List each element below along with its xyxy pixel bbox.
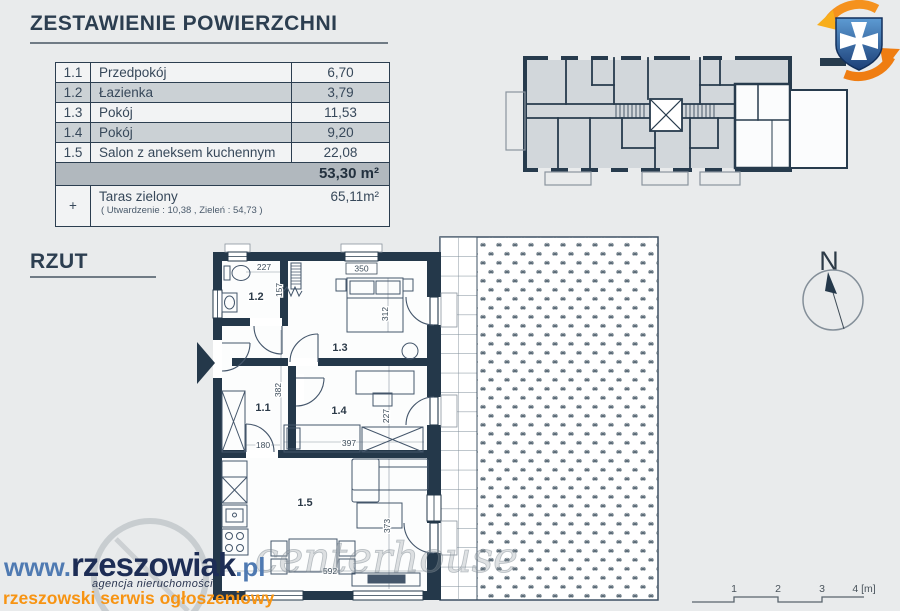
row-number: 1.4	[56, 123, 91, 142]
row-area-value: 22,08	[292, 143, 389, 162]
terrace-area	[440, 237, 658, 600]
terrace-details: Taras zielony 65,11m² ( Utwardzenie : 10…	[91, 186, 389, 226]
title-underline	[30, 42, 388, 44]
page-title: ZESTAWIENIE POWIERZCHNI	[30, 12, 337, 36]
row-area-value: 6,70	[292, 63, 389, 82]
room-label-bedroom1: 1.3	[332, 342, 347, 354]
table-row: 1.4 Pokój 9,20	[56, 123, 389, 143]
compass-circle	[803, 270, 863, 330]
dim-hall-height: 382	[273, 383, 283, 397]
dim-living-height: 373	[382, 519, 392, 533]
keyplan-left-stub	[506, 92, 525, 150]
keyplan-balconies	[545, 172, 740, 185]
terrace-area-value: 65,11m²	[330, 188, 379, 205]
dim-bath-width: 227	[257, 262, 271, 272]
table-row: 1.5 Salon z aneksem kuchennym 22,08	[56, 143, 389, 163]
room-label-bedroom2: 1.4	[331, 405, 347, 417]
entrance-arrow-icon	[197, 342, 215, 384]
room-label-bath: 1.2	[248, 291, 263, 303]
plan-section-title: RZUT	[30, 250, 88, 274]
dim-bed2-height: 227	[381, 409, 391, 423]
scale-tick-1: 1	[731, 583, 737, 595]
table-row: 1.3 Pokój 11,53	[56, 103, 389, 123]
north-compass: N	[803, 246, 863, 330]
terrace-row: + Taras zielony 65,11m² ( Utwardzenie : …	[56, 186, 389, 226]
row-room-name: Przedpokój	[91, 63, 292, 82]
building-key-plan	[506, 55, 847, 185]
dim-bath-height: 157	[274, 283, 284, 297]
row-room-name: Pokój	[91, 123, 292, 142]
dim-bed2-width: 397	[342, 438, 356, 448]
keyplan-highlighted-unit	[735, 84, 790, 168]
terrace-note: ( Utwardzenie : 10,38 , Zieleń : 54,73 )	[99, 205, 379, 217]
dim-living-width: 592	[323, 566, 337, 576]
row-area-value: 9,20	[292, 123, 389, 142]
area-summary-table: 1.1 Przedpokój 6,70 1.2 Łazienka 3,79 1.…	[55, 62, 390, 227]
row-number: 1.5	[56, 143, 91, 162]
plan-title-underline	[30, 276, 156, 278]
total-area-row: 53,30 m²	[56, 163, 389, 186]
row-room-name: Łazienka	[91, 83, 292, 102]
row-room-name: Pokój	[91, 103, 292, 122]
table-row: 1.2 Łazienka 3,79	[56, 83, 389, 103]
scale-bar-line	[692, 597, 864, 602]
row-number: 1.2	[56, 83, 91, 102]
scale-tick-2: 2	[775, 583, 781, 595]
room-label-living: 1.5	[297, 497, 312, 509]
dim-bed1-width: 350	[354, 264, 368, 274]
keyplan-terrace	[790, 90, 847, 168]
row-area-value: 3,79	[292, 83, 389, 102]
row-room-name: Salon z aneksem kuchennym	[91, 143, 292, 162]
table-row: 1.1 Przedpokój 6,70	[56, 63, 389, 83]
terrace-green-area	[477, 237, 658, 600]
room-label-hall: 1.1	[255, 402, 270, 414]
terrace-plus-sign: +	[56, 186, 91, 226]
dim-hall-door: 180	[256, 440, 270, 450]
row-number: 1.3	[56, 103, 91, 122]
apartment-plan: 227 157 350 312 382 180 397 227 373 592 …	[197, 244, 457, 600]
row-area-value: 11,53	[292, 103, 389, 122]
row-number: 1.1	[56, 63, 91, 82]
scale-tick-3: 3	[819, 583, 825, 595]
scale-bar: 1 2 3 4 [m]	[692, 583, 876, 602]
keyplan-elevator	[650, 99, 682, 131]
floorplan-flyer: { "header": { "title": "ZESTAWIENIE POWI…	[0, 0, 900, 611]
terrace-name: Taras zielony	[99, 188, 178, 205]
scale-tick-4: 4 [m]	[852, 583, 875, 595]
dim-bed1-height: 312	[380, 307, 390, 321]
